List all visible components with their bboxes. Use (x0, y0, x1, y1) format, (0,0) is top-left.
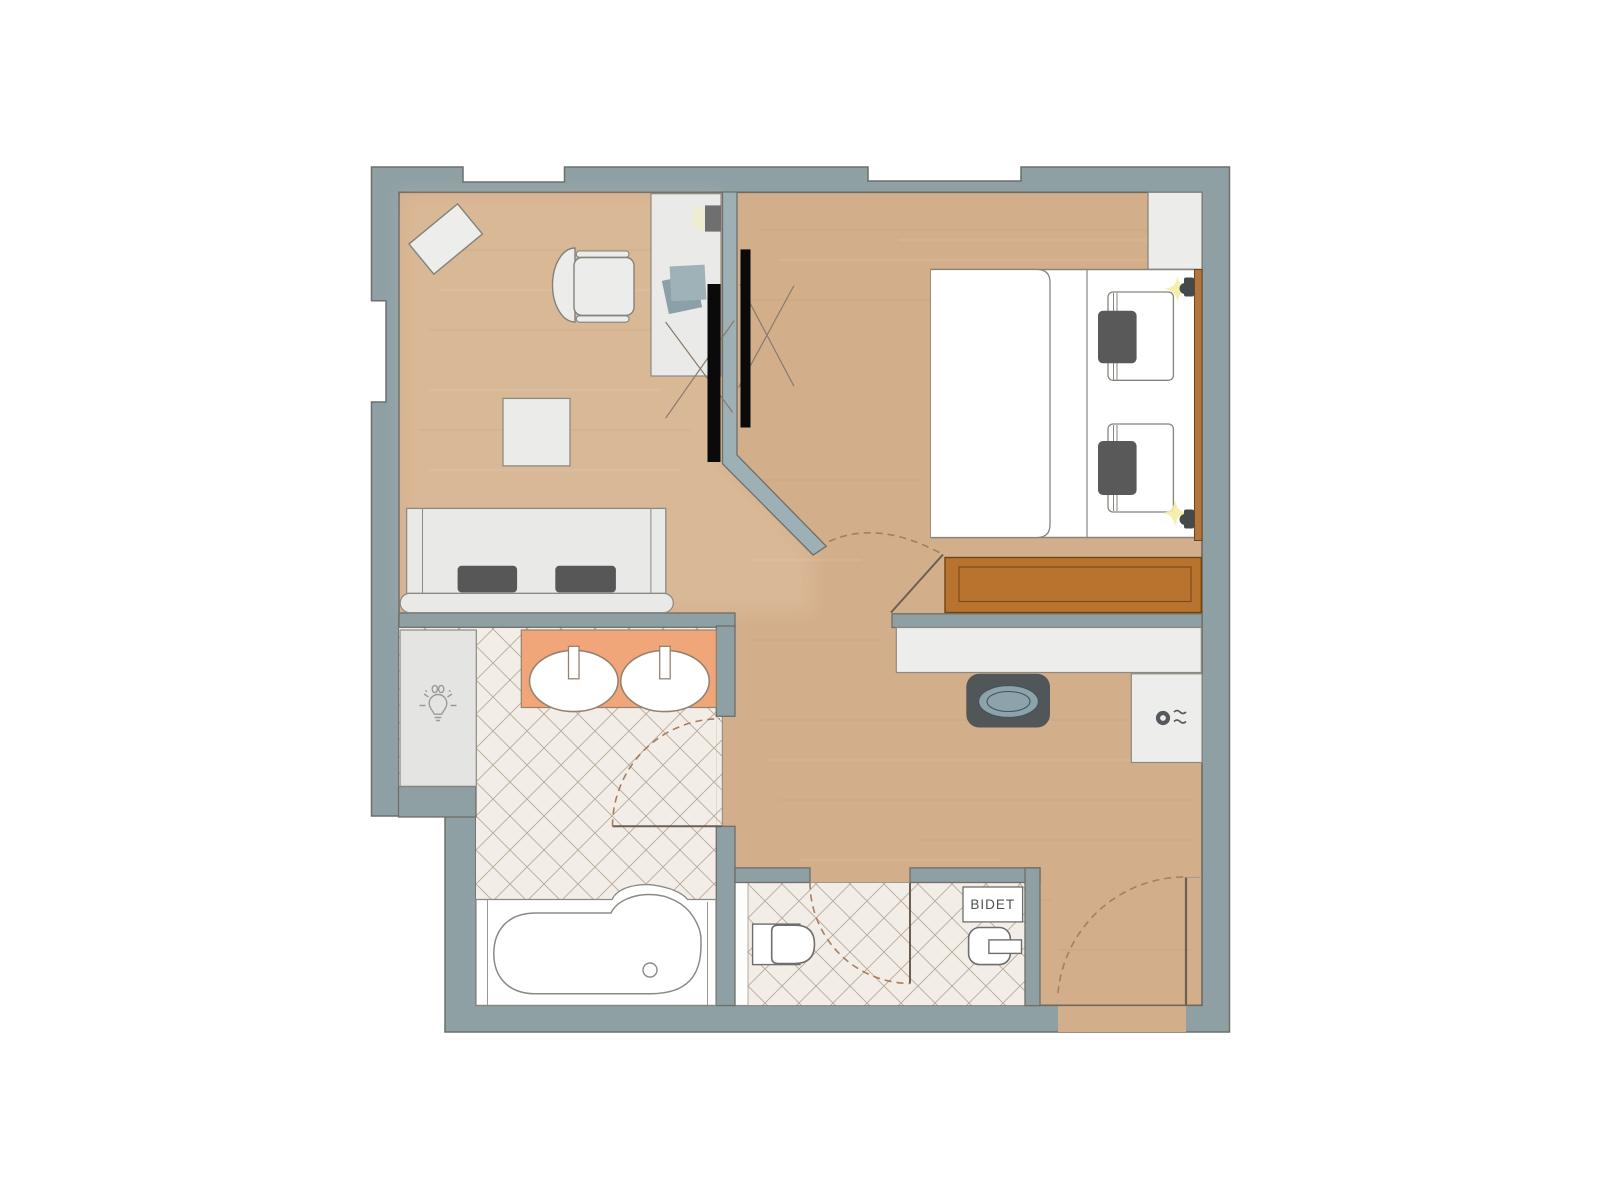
svg-text:BIDET: BIDET (970, 897, 1015, 912)
